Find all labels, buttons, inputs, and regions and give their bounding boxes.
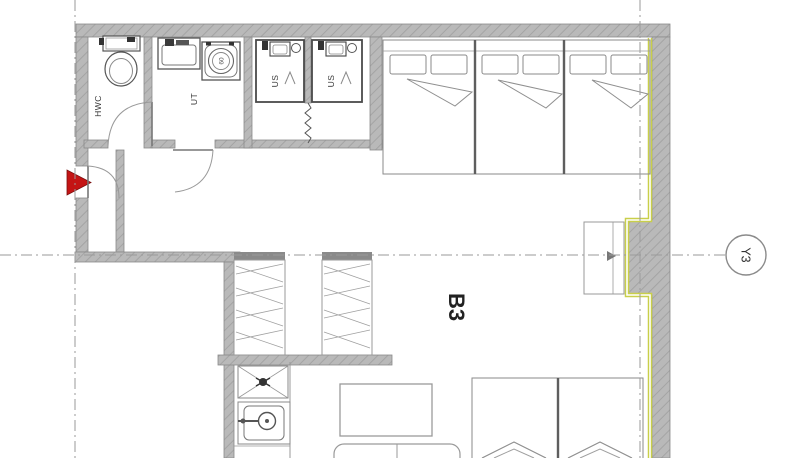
duvet-folds [407, 79, 648, 108]
duvet-chevron [482, 442, 546, 458]
wall-shower-right [370, 37, 382, 150]
duvet-chevron [494, 449, 534, 458]
unit-label: B3 [444, 293, 469, 321]
toilet-valve [99, 38, 104, 45]
laundry-room: 60 UT [158, 38, 240, 192]
laundry-room-label: UT [189, 93, 199, 105]
wall-shower-front [215, 140, 382, 148]
wardrobe1-top [234, 252, 285, 260]
wc-room: HWC [93, 36, 152, 146]
pillow [390, 55, 426, 74]
duvet-fold [407, 79, 472, 106]
wall-laundry-right [244, 37, 252, 148]
pillow [431, 55, 467, 74]
wardrobe2-top [322, 252, 372, 260]
floor-plan: HWC 60 UT US US [0, 0, 800, 458]
walls [75, 24, 670, 458]
kitchen-faucet-center [265, 419, 269, 423]
pillows [390, 55, 647, 74]
pillow [523, 55, 559, 74]
washing-machine-label: 60 [219, 57, 226, 65]
table [340, 384, 432, 436]
laundry-faucet-arm [176, 40, 189, 45]
pillow [611, 55, 647, 74]
entrance-door-swing [88, 166, 119, 198]
kitchen-sink [238, 402, 290, 444]
wall-wardrobe-bottom [218, 355, 392, 365]
grid-marker-label: Y3 [739, 247, 753, 262]
kitchen-faucet-handle [241, 419, 246, 424]
shower1-label: US [270, 75, 280, 88]
wall-top [76, 24, 670, 37]
laundry-door-swing [175, 150, 213, 192]
washing-machine-tab-left [206, 42, 211, 46]
washing-machine-tab-right [229, 42, 234, 46]
laundry-faucet [165, 39, 174, 46]
wall-wc-right [144, 37, 152, 148]
shower2-label: US [326, 75, 336, 88]
wall-shower-divider [305, 37, 311, 103]
toilet-flush-button [127, 37, 135, 42]
bedroom-bottom [472, 222, 643, 458]
shower-curtain [305, 103, 311, 143]
floor-plan-drawing: HWC 60 UT US US [0, 0, 800, 458]
living-area [334, 384, 460, 458]
wall-corridor-bottom [75, 252, 240, 262]
wc-room-label: HWC [93, 95, 103, 117]
duvet-chevron [580, 449, 620, 458]
wardrobes [234, 252, 372, 355]
wall-laundry-bottom-left [152, 140, 175, 148]
wall-left-lower [76, 198, 88, 252]
pillow [570, 55, 606, 74]
radiator [584, 222, 624, 294]
pillow [482, 55, 518, 74]
wall-corridor [116, 150, 124, 252]
shower1-fitting [262, 41, 268, 50]
bedroom-top [383, 40, 650, 174]
duvet-chevron [568, 442, 632, 458]
wall-wc-bottom [84, 140, 108, 148]
shower2-fitting [318, 41, 324, 50]
kitchen [234, 362, 290, 458]
duvet-fold [498, 80, 562, 108]
